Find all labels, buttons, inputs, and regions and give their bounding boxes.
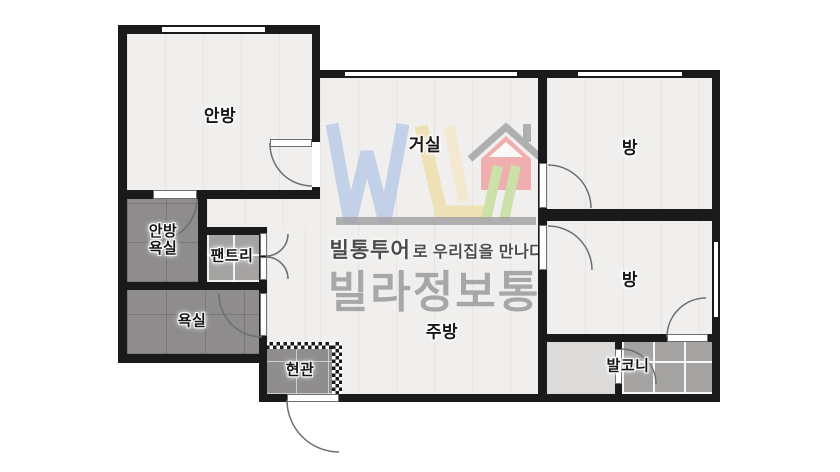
door-arc-bathroom [219, 294, 262, 337]
door-arc-pantry-upper [266, 234, 288, 256]
room-label-pantry: 팬트리 [211, 249, 254, 266]
door-arc-room-top [548, 165, 591, 208]
door-arc-pantry-lower [266, 257, 288, 279]
room-label-room-top: 방 [622, 138, 638, 157]
room-label-kitchen: 주방 [426, 322, 458, 341]
room-label-master-bath: 안방 욕실 [149, 224, 178, 258]
door-arc-room-mid [548, 226, 592, 270]
room-label-entrance: 현관 [286, 363, 315, 380]
room-label-balcony: 발코니 [607, 359, 650, 376]
room-label-master-bedroom: 안방 [204, 106, 236, 125]
door-arc-master-bedroom [270, 143, 312, 186]
room-label-bathroom: 욕실 [178, 314, 207, 331]
room-label-room-mid: 방 [622, 270, 638, 289]
door-arcs [0, 0, 840, 472]
room-label-living-room: 거실 [409, 135, 441, 154]
door-arc-balcony-room [667, 298, 706, 337]
floor-plan-canvas: 빌통투어 로 우리집을 만나다 빌라정보통 [0, 0, 840, 472]
door-arc-front [287, 400, 339, 452]
